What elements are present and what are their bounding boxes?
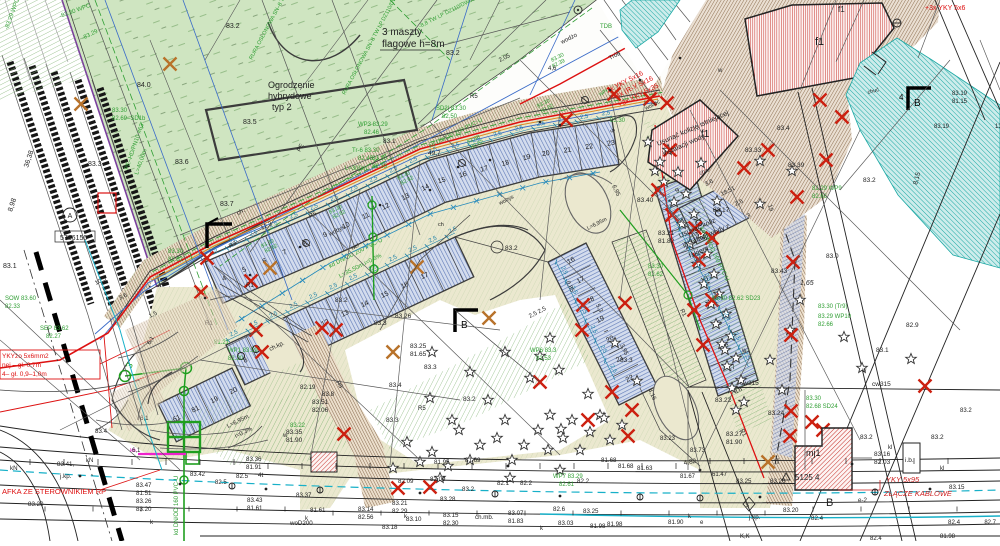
svg-text:83.47: 83.47	[136, 482, 152, 489]
svg-text:82.62: 82.62	[648, 272, 664, 278]
svg-text:83.15: 83.15	[443, 512, 459, 519]
svg-text:83.0: 83.0	[826, 253, 839, 260]
svg-text:81.67: 81.67	[680, 474, 696, 480]
svg-text:83.07: 83.07	[508, 510, 524, 517]
svg-text:83.19: 83.19	[952, 91, 968, 97]
svg-text:83.20: 83.20	[136, 506, 152, 513]
svg-text:83.2: 83.2	[462, 486, 475, 493]
svg-text:83.26: 83.26	[136, 498, 152, 505]
svg-text:81.51: 81.51	[136, 490, 152, 497]
svg-text:83.25: 83.25	[410, 343, 427, 350]
svg-text:82.1: 82.1	[497, 480, 510, 487]
svg-text:82.5: 82.5	[236, 473, 249, 480]
svg-text:e-2: e-2	[858, 497, 868, 504]
svg-text:81.15: 81.15	[952, 99, 968, 105]
svg-text:Tr-6 83.30: Tr-6 83.30	[352, 148, 380, 154]
svg-text:83.17: 83.17	[713, 207, 730, 214]
svg-text:83.30: 83.30	[112, 108, 128, 114]
svg-text:82.03: 82.03	[874, 459, 891, 466]
svg-text:83.20: 83.20	[28, 501, 44, 508]
svg-text:83.29 WP10: 83.29 WP10	[818, 314, 852, 320]
svg-text:82.27: 82.27	[46, 334, 62, 340]
svg-text:YKY 5x95: YKY 5x95	[886, 475, 920, 484]
svg-text:AFKA ZE STEROWNIKIEM RP: AFKA ZE STEROWNIKIEM RP	[2, 487, 106, 496]
svg-text:81.98: 81.98	[940, 534, 956, 540]
svg-text:20: 20	[541, 150, 550, 158]
svg-text:5: 5	[746, 503, 749, 509]
svg-text:83.19: 83.19	[934, 124, 950, 130]
svg-text:83.10: 83.10	[406, 516, 422, 523]
svg-text:4,6: 4,6	[548, 66, 557, 72]
svg-text:83.1: 83.1	[3, 263, 17, 270]
svg-text:82.56: 82.56	[358, 514, 374, 521]
svg-text:83.42: 83.42	[190, 472, 206, 478]
svg-text:82.53: 82.53	[536, 356, 552, 362]
svg-text:81.83: 81.83	[508, 518, 524, 525]
svg-text:nej – gł. 0,7m: nej – gł. 0,7m	[2, 362, 41, 369]
svg-text:ch: ch	[438, 222, 444, 228]
svg-text:SD2| 83.30: SD2| 83.30	[436, 106, 467, 112]
svg-text:82.69–SD1b: 82.69–SD1b	[112, 116, 146, 122]
svg-text:WP3 83.29: WP3 83.29	[358, 122, 388, 128]
svg-text:83.1: 83.1	[876, 347, 889, 354]
svg-text:61.47: 61.47	[712, 472, 728, 478]
svg-text:83.37: 83.37	[296, 492, 312, 499]
svg-text:83.14: 83.14	[358, 506, 374, 513]
svg-text:81.68: 81.68	[618, 463, 634, 470]
svg-text:21: 21	[563, 147, 572, 155]
svg-text:WP6 83.3: WP6 83.3	[530, 348, 557, 354]
svg-text:83.4: 83.4	[95, 428, 108, 435]
svg-text:typ 2: typ 2	[272, 102, 292, 112]
svg-text:83.2: 83.2	[960, 408, 972, 414]
svg-text:81.82: 81.82	[658, 238, 675, 245]
svg-text:f1: f1	[815, 36, 824, 48]
svg-text:83.16: 83.16	[874, 451, 891, 458]
svg-text:82.61: 82.61	[559, 482, 575, 488]
svg-text:+3x YKY 5x6: +3x YKY 5x6	[925, 5, 966, 12]
svg-text:83.2: 83.2	[226, 23, 240, 30]
svg-text:83.30 (Tr9): 83.30 (Tr9)	[818, 304, 847, 310]
svg-text:4: 4	[899, 93, 904, 102]
svg-text:83.2: 83.2	[931, 434, 944, 441]
svg-text:22: 22	[585, 143, 594, 151]
svg-text:49,7: 49,7	[428, 150, 441, 157]
svg-text:83.21: 83.21	[392, 500, 408, 507]
svg-text:WP1 83.59: WP1 83.59	[228, 348, 258, 354]
svg-text:B: B	[826, 497, 833, 509]
svg-text:83.25: 83.25	[583, 508, 599, 515]
svg-text:83.20: 83.20	[783, 507, 799, 514]
svg-text:82.68 SD24: 82.68 SD24	[806, 404, 838, 410]
svg-text:83.43: 83.43	[247, 497, 263, 504]
svg-text:82.06: 82.06	[312, 407, 329, 414]
svg-text:83.15: 83.15	[949, 484, 965, 491]
svg-text:83.3: 83.3	[424, 364, 437, 371]
svg-text:w: w	[741, 348, 747, 354]
svg-text:81.98: 81.98	[607, 521, 623, 528]
svg-text:83.2: 83.2	[335, 297, 348, 304]
svg-text:i.b.: i.b.	[905, 457, 914, 464]
svg-text:hybrydowe: hybrydowe	[268, 91, 312, 101]
svg-text:Ogrodzenie: Ogrodzenie	[268, 80, 315, 90]
svg-text:81.98: 81.98	[590, 523, 606, 530]
svg-text:R5: R5	[470, 94, 478, 100]
svg-text:SOW 83.60: SOW 83.60	[5, 296, 37, 302]
svg-text:81.61: 81.61	[310, 507, 326, 514]
svg-text:TDB: TDB	[600, 24, 612, 30]
svg-text:flagowe h=8m: flagowe h=8m	[382, 39, 445, 50]
svg-text:83.25: 83.25	[736, 478, 752, 485]
svg-text:83.23: 83.23	[660, 436, 676, 442]
svg-text:j.kp.: j.kp.	[59, 473, 72, 480]
svg-text:K,K: K,K	[740, 534, 750, 540]
svg-text:83.2: 83.2	[446, 50, 460, 57]
svg-text:13.0: 13.0	[995, 124, 1000, 130]
svg-text:R1: R1	[246, 283, 254, 289]
svg-text:82.09: 82.09	[398, 478, 414, 485]
svg-text:f1: f1	[838, 5, 845, 14]
svg-text:82.5: 82.5	[215, 480, 227, 486]
svg-text:83.03: 83.03	[558, 520, 574, 527]
svg-text:cw315: cw315	[872, 381, 891, 388]
svg-text:82.20: 82.20	[228, 356, 244, 362]
svg-text:YKYżo 5x6mm2: YKYżo 5x6mm2	[2, 353, 49, 360]
svg-text:83.3: 83.3	[620, 357, 633, 364]
svg-text:kN: kN	[86, 458, 93, 464]
svg-text:83.41,: 83.41,	[57, 461, 74, 468]
svg-text:83.30: 83.30	[168, 249, 184, 255]
svg-text:81.61: 81.61	[247, 505, 263, 512]
svg-text:82.4: 82.4	[870, 536, 882, 541]
svg-text:82.2: 82.2	[577, 478, 590, 485]
svg-text:L=300m: L=300m	[345, 166, 367, 172]
svg-text:w: w	[717, 68, 723, 74]
svg-text:1,65: 1,65	[800, 280, 814, 287]
svg-text:83.36: 83.36	[246, 456, 262, 463]
svg-text:4t: 4t	[258, 472, 263, 479]
svg-text:w: w	[282, 433, 288, 439]
svg-text:woD200: woD200	[289, 520, 313, 527]
svg-text:w: w	[861, 368, 867, 374]
svg-text:83.4: 83.4	[389, 382, 402, 389]
svg-text:82.09: 82.09	[430, 476, 446, 483]
svg-text:82.30: 82.30	[443, 520, 459, 527]
svg-text:ch.mb.: ch.mb.	[475, 514, 494, 521]
svg-text:83.30 82.62 SD23: 83.30 82.62 SD23	[712, 296, 761, 302]
svg-text:ZŁĄCZE KABLOWE: ZŁĄCZE KABLOWE	[883, 489, 953, 498]
svg-text:5125 4: 5125 4	[795, 473, 820, 482]
svg-text:83.3: 83.3	[88, 161, 102, 168]
svg-text:82.7: 82.7	[984, 520, 996, 526]
svg-text:83.7: 83.7	[220, 201, 234, 208]
svg-text:83.2: 83.2	[863, 177, 876, 184]
svg-text:83.4: 83.4	[777, 125, 790, 132]
svg-text:82.62: 82.62	[168, 257, 184, 263]
svg-text:j.kp.: j.kp.	[748, 514, 761, 521]
svg-text:81.65: 81.65	[410, 351, 427, 358]
svg-text:82.2: 82.2	[520, 480, 533, 487]
svg-text:3 maszty: 3 maszty	[382, 27, 422, 38]
svg-text:83.35: 83.35	[286, 429, 303, 436]
svg-text:83.1: 83.1	[383, 138, 396, 145]
svg-text:82.4: 82.4	[948, 519, 961, 526]
svg-text:83.6: 83.6	[175, 159, 189, 166]
svg-text:23: 23	[607, 140, 616, 148]
svg-text:kl: kl	[888, 445, 892, 451]
svg-text:83.30: 83.30	[648, 264, 664, 270]
svg-text:6,1: 6,1	[132, 448, 141, 454]
svg-text:83.33: 83.33	[745, 147, 762, 154]
svg-text:83.30: 83.30	[806, 396, 822, 402]
svg-text:83.3: 83.3	[386, 417, 399, 424]
svg-text:83.28: 83.28	[440, 496, 456, 503]
svg-text:82.46: 82.46	[364, 130, 380, 136]
svg-text:81.95: 81.95	[434, 459, 450, 466]
svg-text:81.63: 81.63	[637, 465, 653, 472]
svg-text:R5: R5	[418, 406, 426, 412]
svg-text:82.4: 82.4	[811, 515, 824, 522]
svg-text:83.30: 83.30	[610, 118, 626, 124]
svg-text:81.69: 81.69	[465, 457, 481, 464]
svg-text:83.26: 83.26	[770, 478, 786, 485]
svg-text:83.24: 83.24	[768, 410, 785, 417]
svg-text:82.6: 82.6	[553, 506, 566, 513]
svg-text:SEP 83.62: SEP 83.62	[40, 326, 69, 332]
svg-text:83.39: 83.39	[788, 162, 805, 169]
svg-text:B: B	[914, 98, 921, 109]
svg-text:5786150: 5786150	[60, 235, 87, 242]
svg-text:mj1: mj1	[806, 448, 821, 458]
svg-text:83.2: 83.2	[463, 396, 476, 403]
svg-text:84.0: 84.0	[137, 82, 151, 89]
svg-text:82.39: 82.39	[372, 164, 388, 170]
svg-text:81.90: 81.90	[726, 439, 743, 446]
svg-text:83.18: 83.18	[382, 524, 398, 531]
svg-text:81.90: 81.90	[286, 437, 303, 444]
svg-text:83.21: 83.21	[658, 230, 675, 237]
svg-text:A: A	[68, 213, 73, 220]
svg-text:kl: kl	[940, 466, 944, 472]
svg-text:81.90: 81.90	[668, 519, 684, 526]
svg-text:81.91: 81.91	[246, 464, 262, 471]
svg-text:83.40: 83.40	[637, 197, 654, 204]
svg-text:83.2: 83.2	[860, 434, 873, 441]
svg-text:83.5: 83.5	[243, 119, 257, 126]
svg-text:82.66: 82.66	[818, 322, 834, 328]
svg-text:83.8: 83.8	[322, 391, 335, 398]
svg-text:82.9: 82.9	[906, 322, 919, 329]
svg-text:kN: kN	[10, 465, 18, 472]
svg-text:81.68: 81.68	[601, 457, 617, 464]
